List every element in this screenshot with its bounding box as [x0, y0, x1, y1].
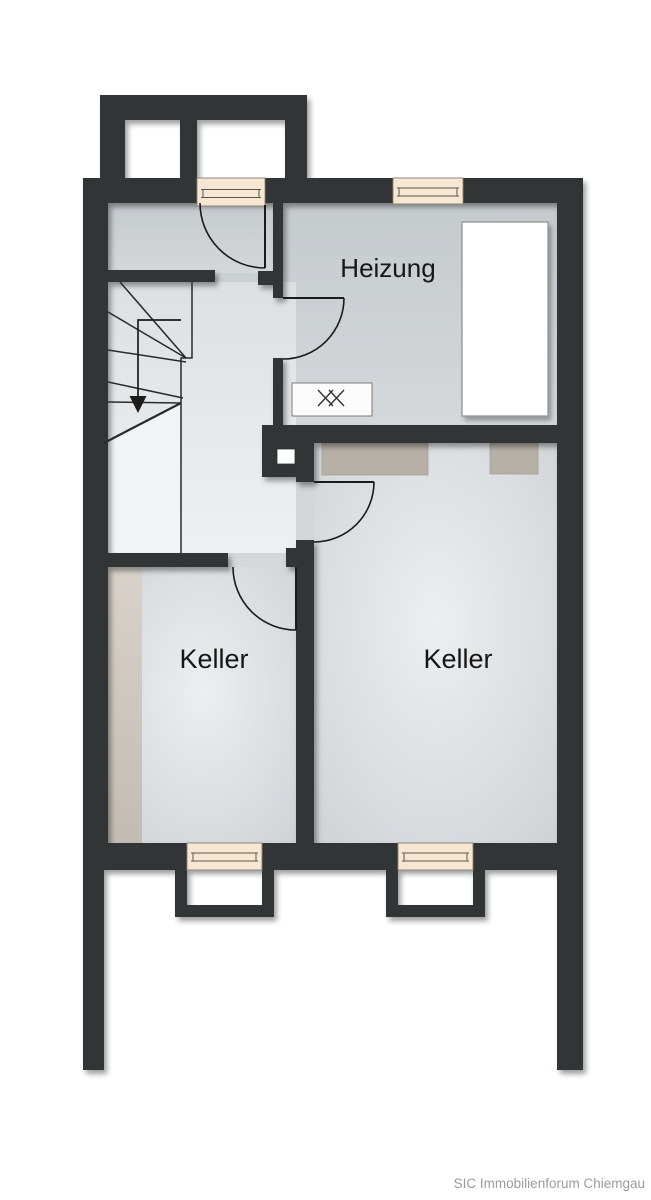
boiler-unit — [462, 222, 548, 416]
floor-entrance-hall — [108, 203, 273, 273]
floor-plan-page: Heizung Keller Keller SIC Immobilienforu… — [0, 0, 651, 1200]
wall-bottom — [83, 843, 583, 870]
wall-hall-heizung-lower — [273, 358, 283, 428]
wall-protrusion-left — [100, 118, 125, 180]
wall-heizung-bottom — [262, 425, 557, 443]
room-label-keller-right: Keller — [423, 644, 492, 674]
room-label-heizung: Heizung — [340, 253, 435, 283]
wall-middle-lower — [296, 540, 314, 843]
floor-keller-right — [314, 443, 557, 843]
window-bottom-left — [187, 843, 262, 870]
party-wall-stub-right — [557, 870, 583, 1070]
wall-junction-stub-1 — [258, 271, 283, 285]
wall-middle-upper — [296, 443, 314, 482]
wall-hall-bottom — [108, 270, 215, 282]
shaft-notch — [277, 449, 295, 464]
attribution-text: SIC Immobilienforum Chiemgau — [454, 1176, 645, 1191]
wall-middle-stub — [286, 548, 296, 567]
lightwell-right-wall-c — [386, 905, 485, 917]
room-label-keller-left: Keller — [179, 644, 248, 674]
party-wall-stub-left — [83, 870, 104, 1070]
window-top-entrance-door — [197, 178, 265, 206]
sideboard-right — [490, 443, 538, 474]
sideboard-top — [322, 443, 428, 475]
wall-keller-left-top — [108, 553, 228, 567]
floor-plan-canvas: Heizung Keller Keller SIC Immobilienforu… — [0, 0, 651, 1200]
wall-protrusion-right — [285, 118, 307, 180]
drain-symbol-box — [292, 383, 372, 416]
wall-left — [83, 178, 108, 870]
lightwell-right — [386, 870, 485, 917]
wall-top — [83, 178, 583, 203]
lightwell-left — [175, 870, 274, 917]
wall-protrusion-top — [100, 95, 307, 120]
lightwell-left-wall-c — [175, 905, 274, 917]
shelf-strip-left-keller — [108, 567, 142, 843]
window-top-heizung — [393, 178, 463, 204]
wall-protrusion-pillar — [180, 118, 197, 180]
window-bottom-right — [398, 843, 473, 870]
wall-right — [557, 178, 583, 870]
